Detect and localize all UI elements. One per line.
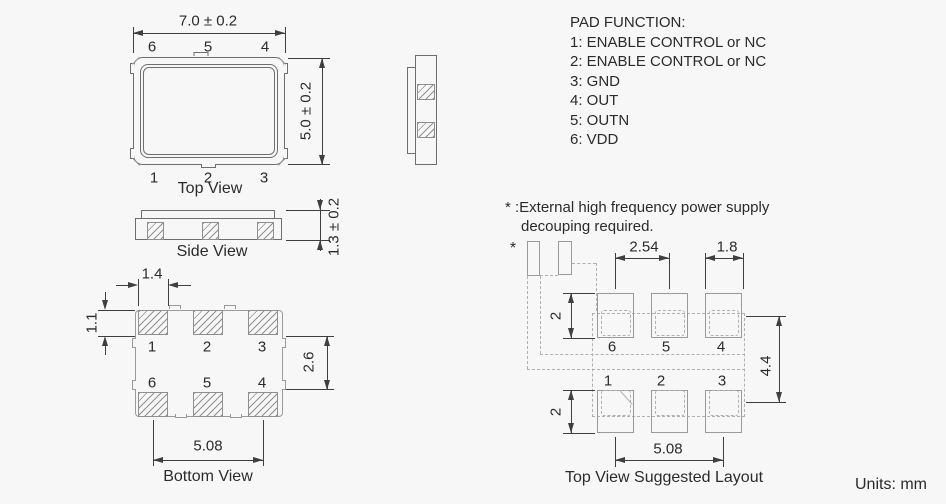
extension-line [743, 253, 744, 289]
pad-function-item-3: 3: GND [570, 72, 766, 92]
layout-component-pad [709, 390, 739, 416]
trace [572, 263, 596, 264]
pad-function-title: PAD FUNCTION: [570, 13, 766, 33]
notch [132, 380, 136, 390]
dimension-line [133, 33, 285, 34]
arrowhead [102, 300, 108, 310]
arrowhead [319, 155, 325, 165]
layout-pad-height-top-dim-label: 2 [549, 312, 564, 320]
layout-component-pad [655, 310, 685, 336]
layout-pitch-dim-label: 2.54 [629, 240, 658, 255]
decoupling-capacitor [558, 241, 572, 275]
arrowhead [659, 255, 669, 261]
extension-line [98, 310, 135, 311]
dimension-line [779, 316, 780, 402]
layout-pad-label-3: 3 [718, 374, 726, 389]
dimension-line [615, 460, 723, 461]
trace [527, 276, 528, 369]
top-view-pad-label-3: 3 [260, 171, 268, 186]
top-view-height-dim-label: 5.0 ± 0.2 [299, 82, 314, 140]
pad-function-item-2: 2: ENABLE CONTROL or NC [570, 52, 766, 72]
layout-pad-label-4: 4 [717, 340, 725, 355]
bottom-view-pad [193, 310, 223, 335]
arrowhead [776, 392, 782, 402]
arrowhead [253, 457, 263, 463]
arrowhead [317, 240, 323, 250]
arrowhead [705, 255, 715, 261]
layout-component-pad [655, 390, 685, 416]
extension-line [138, 279, 139, 306]
pad-function-item-5: 5: OUTN [570, 111, 766, 131]
pad-function-list: PAD FUNCTION: 1: ENABLE CONTROL or NC 2:… [570, 13, 766, 150]
arrowhead [275, 30, 285, 36]
notch [282, 338, 286, 348]
bottom-view-pad [138, 392, 168, 417]
decoupling-capacitor [527, 241, 540, 276]
side-view-pad [257, 222, 274, 240]
arrowhead [615, 457, 625, 463]
decoupling-note-line2: decouping required. [505, 217, 769, 236]
side-view-pad [202, 222, 219, 240]
bottom-view-title: Bottom View [163, 469, 253, 485]
layout-row-span-dim-label: 4.4 [759, 356, 774, 377]
bottom-view-pad-width-dim-label: 1.4 [142, 267, 163, 282]
layout-pad-width-dim-label: 1.8 [717, 240, 738, 255]
notch [169, 305, 181, 309]
extension-line [263, 420, 264, 466]
notch [230, 414, 242, 418]
pad-function-item-6: 6: VDD [570, 130, 766, 150]
layout-component-pad [601, 310, 631, 336]
extension-line [285, 27, 286, 53]
arrowhead [568, 423, 574, 433]
arrowhead [568, 328, 574, 338]
arrowhead [168, 282, 178, 288]
units-label: Units: mm [855, 477, 927, 493]
top-view-width-dim-label: 7.0 ± 0.2 [179, 14, 237, 29]
notch [224, 305, 236, 309]
extension-line [723, 437, 724, 467]
arrowhead [324, 380, 330, 390]
layout-pad-height-bottom-dim-label: 2 [549, 408, 564, 416]
bottom-view-pad [138, 310, 168, 335]
dimension-line [153, 460, 263, 461]
extension-line [563, 433, 595, 434]
layout-pad-label-1: 1 [604, 374, 612, 389]
side-view-title: Side View [177, 244, 248, 260]
arrowhead [128, 282, 138, 288]
arrowhead [615, 255, 625, 261]
bottom-view-pad-label-4: 4 [258, 376, 266, 391]
top-view-title: Top View [178, 181, 243, 197]
dimension-line [322, 58, 323, 165]
bottom-view-pad-label-1: 1 [148, 340, 156, 355]
decoupling-note-line1: * :External high frequency power supply [505, 198, 769, 217]
arrowhead [102, 336, 108, 346]
bottom-view-pad-label-6: 6 [148, 376, 156, 391]
pad-function-item-1: 1: ENABLE CONTROL or NC [570, 33, 766, 53]
extension-line [133, 27, 134, 53]
arrowhead [568, 390, 574, 400]
top-view-pad-label-1: 1 [150, 171, 158, 186]
dimension-line [105, 346, 106, 355]
arrowhead [733, 255, 743, 261]
extension-line [669, 253, 670, 289]
suggested-layout-title: Top View Suggested Layout [565, 470, 763, 486]
notch [132, 338, 136, 348]
notch [201, 164, 216, 168]
layout-component-pad [601, 390, 631, 416]
end-view-lid [407, 67, 416, 154]
notch [175, 414, 187, 418]
bottom-view-pad-height-dim-label: 1.1 [85, 313, 100, 334]
arrowhead [713, 457, 723, 463]
arrowhead [317, 200, 323, 210]
side-view-thickness-dim-label: 1.3 ± 0.2 [327, 198, 342, 256]
arrowhead [319, 58, 325, 68]
bottom-view-pad-label-3: 3 [258, 340, 266, 355]
arrowhead [133, 30, 143, 36]
layout-pad-label-2: 2 [657, 374, 665, 389]
end-view-pad [417, 84, 435, 100]
bottom-view-pad [248, 392, 278, 417]
layout-component-pad [709, 310, 739, 336]
layout-pad-span-dim-label: 5.08 [653, 442, 682, 457]
engineering-drawing-canvas: 7.0 ± 0.2 6 5 4 1 2 3 Top View [0, 0, 946, 504]
end-view-pad [417, 122, 435, 138]
extension-line [746, 402, 786, 403]
bottom-view-pad [193, 392, 223, 417]
extension-line [286, 210, 330, 211]
bottom-view-pad-label-2: 2 [203, 340, 211, 355]
end-view-body [415, 55, 437, 165]
trace [540, 275, 558, 276]
bottom-view-row-gap-dim-label: 2.6 [302, 352, 317, 373]
bottom-view-pad [248, 310, 278, 335]
top-view-lid-seam-inner [143, 67, 275, 155]
notch [194, 52, 209, 56]
layout-pad-label-5: 5 [662, 340, 670, 355]
arrowhead [568, 293, 574, 303]
top-view-pad-label-4: 4 [261, 40, 269, 55]
extension-line [286, 240, 330, 241]
arrowhead [324, 336, 330, 346]
decoupling-note: * :External high frequency power supply … [505, 198, 769, 236]
trace [540, 276, 541, 354]
bottom-view-pad-label-5: 5 [203, 376, 211, 391]
top-view-pad-label-6: 6 [148, 40, 156, 55]
arrowhead [776, 316, 782, 326]
dimension-line [178, 285, 191, 286]
bottom-view-pad-span-dim-label: 5.08 [193, 439, 222, 454]
extension-line [563, 338, 595, 339]
side-view-pad [147, 222, 164, 240]
arrowhead [153, 457, 163, 463]
layout-pad-label-6: 6 [608, 340, 616, 355]
pad-function-item-4: 4: OUT [570, 91, 766, 111]
layout-asterisk: * [510, 241, 516, 257]
